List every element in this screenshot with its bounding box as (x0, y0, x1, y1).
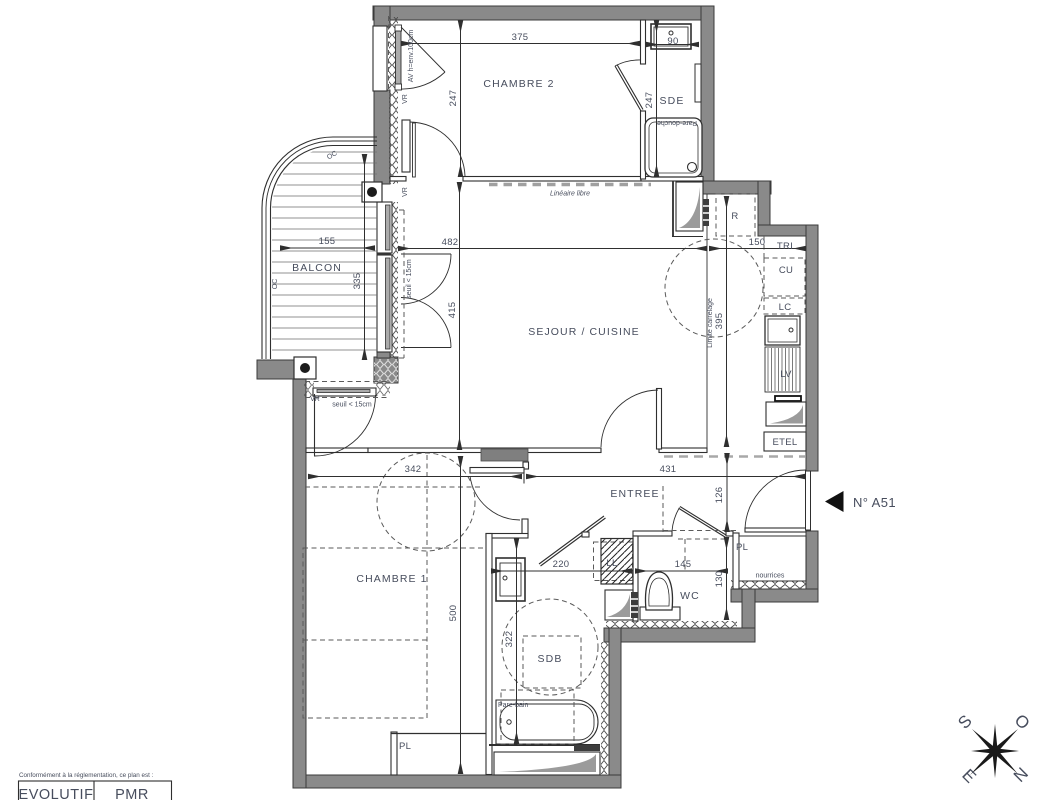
svg-text:Pare-bain: Pare-bain (498, 702, 528, 709)
svg-text:155: 155 (319, 236, 336, 247)
svg-text:SDB: SDB (538, 653, 563, 665)
svg-text:VR: VR (310, 396, 320, 403)
svg-text:VR: VR (402, 187, 409, 197)
svg-text:PL: PL (399, 741, 411, 752)
svg-text:500: 500 (448, 605, 459, 622)
svg-text:WC: WC (680, 590, 700, 602)
svg-text:126: 126 (714, 487, 725, 504)
svg-text:150: 150 (749, 237, 766, 248)
svg-text:247: 247 (448, 90, 459, 107)
svg-text:BALCON: BALCON (292, 262, 342, 274)
svg-text:90: 90 (667, 36, 678, 47)
svg-text:342: 342 (405, 464, 422, 475)
svg-text:seuil < 15cm: seuil < 15cm (406, 259, 413, 299)
svg-text:CHAMBRE 1: CHAMBRE 1 (356, 573, 427, 585)
svg-text:335: 335 (352, 273, 363, 290)
svg-text:PMR: PMR (115, 787, 149, 800)
svg-text:482: 482 (442, 237, 459, 248)
svg-text:TRI: TRI (777, 241, 793, 252)
svg-text:130: 130 (714, 571, 725, 588)
svg-text:Linéaire libre: Linéaire libre (550, 191, 590, 198)
svg-text:AV h=env.100cm: AV h=env.100cm (408, 30, 415, 83)
svg-text:Pare-douche: Pare-douche (657, 119, 697, 126)
svg-text:PL: PL (736, 542, 748, 553)
svg-text:145: 145 (675, 559, 692, 570)
svg-text:431: 431 (660, 464, 677, 475)
svg-text:LC: LC (779, 302, 792, 313)
svg-text:EVOLUTIF: EVOLUTIF (19, 787, 94, 800)
svg-text:OC: OC (272, 279, 279, 290)
svg-text:375: 375 (512, 32, 529, 43)
svg-text:220: 220 (553, 559, 570, 570)
svg-text:SDE: SDE (660, 95, 685, 107)
svg-text:VR: VR (402, 94, 409, 104)
svg-text:SEJOUR / CUISINE: SEJOUR / CUISINE (528, 326, 640, 338)
svg-text:395: 395 (714, 313, 725, 330)
svg-text:322: 322 (504, 631, 515, 648)
svg-text:N° A51: N° A51 (853, 495, 896, 510)
svg-text:Conformément à la réglementati: Conformément à la réglementation, ce pla… (19, 772, 154, 779)
svg-text:Limite carrelage: Limite carrelage (707, 298, 714, 348)
svg-text:nourrices: nourrices (756, 573, 785, 580)
svg-text:247: 247 (644, 92, 655, 109)
svg-text:LV: LV (780, 369, 792, 380)
svg-text:ENTREE: ENTREE (610, 488, 659, 500)
svg-text:LL: LL (606, 558, 617, 569)
svg-text:seuil < 15cm: seuil < 15cm (332, 402, 372, 409)
svg-text:CHAMBRE 2: CHAMBRE 2 (483, 78, 554, 90)
svg-text:CU: CU (779, 265, 793, 276)
svg-text:415: 415 (447, 302, 458, 319)
svg-text:ETEL: ETEL (773, 437, 798, 448)
svg-text:R: R (731, 211, 738, 222)
